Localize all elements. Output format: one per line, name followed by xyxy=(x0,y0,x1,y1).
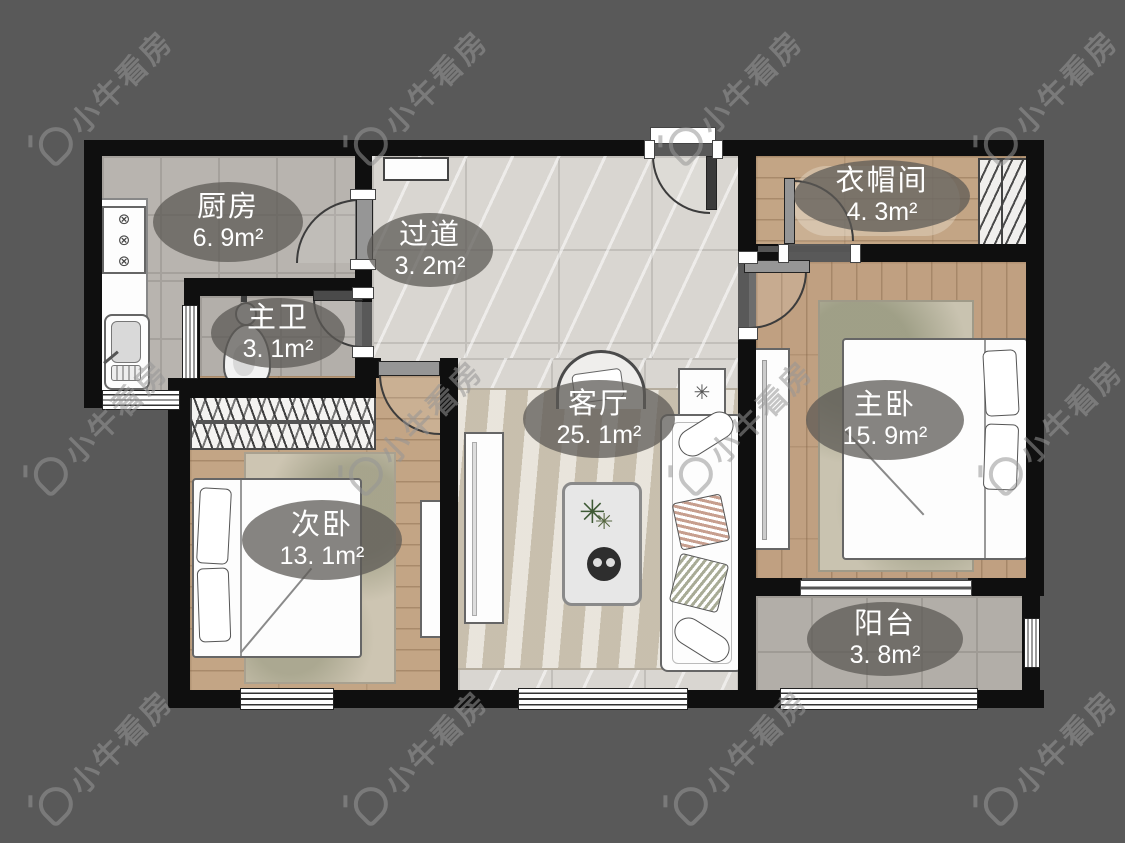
bathroom-window xyxy=(182,305,198,379)
kitchen-door-frame xyxy=(350,189,376,200)
room-label-living-room: 客厅 25. 1m² xyxy=(523,380,675,458)
cloakroom-door-frame xyxy=(850,244,861,263)
watermark-logo-icon xyxy=(667,780,715,828)
watermark-text: 小牛看房 xyxy=(57,678,181,802)
kitchen-window xyxy=(102,390,180,410)
wall xyxy=(168,378,376,398)
master-door-frame xyxy=(738,251,758,264)
sofa-cushion xyxy=(672,493,731,550)
entry-door xyxy=(706,156,717,210)
shoe-cabinet xyxy=(383,157,449,181)
cup-icon xyxy=(593,558,602,567)
balcony-sliding-door xyxy=(800,580,972,596)
room-name: 主卧 xyxy=(854,390,916,422)
wall xyxy=(852,244,1026,262)
entry-door-frame xyxy=(712,140,723,159)
second-bedroom-window xyxy=(240,688,334,710)
entry-door-frame xyxy=(644,140,655,159)
hanger-rail xyxy=(196,420,370,424)
pillow xyxy=(197,567,232,642)
room-name: 厨房 xyxy=(197,192,259,224)
sink-basin xyxy=(111,321,141,363)
room-area: 6. 9m² xyxy=(193,224,264,253)
room-name: 次卧 xyxy=(291,510,353,542)
master-wardrobe xyxy=(752,348,790,550)
balcony-side-window xyxy=(1024,618,1040,668)
room-label-hallway: 过道 3. 2m² xyxy=(367,213,493,287)
tray-icon xyxy=(587,547,621,581)
hanger-rack xyxy=(190,396,376,450)
pillow xyxy=(196,487,232,565)
cloakroom-door-frame xyxy=(778,244,789,263)
watermark-logo-icon xyxy=(977,780,1025,828)
burner-icon: ⊗ xyxy=(118,252,131,270)
cloakroom-door xyxy=(784,178,795,244)
room-name: 过道 xyxy=(399,220,461,252)
bathroom-door-frame xyxy=(352,346,374,358)
room-area: 13. 1m² xyxy=(280,542,365,571)
burner-icon: ⊗ xyxy=(118,231,131,249)
stove-icon: ⊗ ⊗ ⊗ xyxy=(102,206,146,274)
watermark-logo-icon xyxy=(32,780,80,828)
cup-icon xyxy=(606,558,615,567)
watermark-logo-icon xyxy=(347,780,395,828)
wall xyxy=(738,156,756,263)
second-bedroom-door xyxy=(378,361,440,376)
watermark: 小牛看房 xyxy=(28,678,181,831)
cloakroom-wardrobe xyxy=(978,158,1028,246)
bathroom-door-frame xyxy=(352,287,374,299)
sink-icon xyxy=(104,314,150,390)
wall xyxy=(738,330,756,690)
room-label-kitchen: 厨房 6. 9m² xyxy=(153,182,303,262)
room-area: 3. 1m² xyxy=(243,335,314,364)
room-name: 阳台 xyxy=(854,609,916,641)
wardrobe-door-line xyxy=(762,360,767,540)
pillow xyxy=(982,349,1019,417)
master-door-frame xyxy=(738,327,758,340)
room-label-second-bedroom: 次卧 13. 1m² xyxy=(242,500,402,580)
watermark-text: 小牛看房 xyxy=(1002,18,1125,142)
room-area: 3. 8m² xyxy=(850,641,921,670)
tv-console xyxy=(464,432,504,624)
balcony-window xyxy=(780,688,978,710)
closet-door-threshold xyxy=(758,246,852,252)
living-room-window xyxy=(518,688,688,710)
floor-plan: ⊗ ⊗ ⊗ xyxy=(0,0,1125,843)
burner-icon: ⊗ xyxy=(118,210,131,228)
room-name: 衣帽间 xyxy=(835,166,928,198)
pillow xyxy=(983,423,1019,490)
wall xyxy=(84,390,104,408)
room-area: 25. 1m² xyxy=(557,421,642,450)
wall xyxy=(714,140,1044,156)
room-area: 15. 9m² xyxy=(843,422,928,451)
wall xyxy=(440,358,458,690)
watermark-logo-icon xyxy=(27,450,75,498)
wall xyxy=(968,578,1026,596)
coffee-table: ✳ ✳ xyxy=(562,482,642,606)
wall xyxy=(168,398,190,690)
room-label-master-bedroom: 主卧 15. 9m² xyxy=(806,380,964,460)
wardrobe-rail xyxy=(1001,160,1003,244)
wall xyxy=(84,140,652,156)
entry-recess xyxy=(650,127,716,144)
watermark-text: 小牛看房 xyxy=(687,18,811,142)
flower-box: ✳ xyxy=(678,368,726,416)
watermark-text: 小牛看房 xyxy=(57,18,181,142)
watermark-text: 小牛看房 xyxy=(372,18,496,142)
bed-head-line xyxy=(240,480,242,656)
watermark-logo-icon xyxy=(32,120,80,168)
plant-icon: ✳ xyxy=(595,509,613,535)
wall xyxy=(84,156,102,408)
wall xyxy=(1026,156,1044,596)
room-area: 4. 3m² xyxy=(847,198,918,227)
room-area: 3. 2m² xyxy=(395,252,466,281)
room-name: 主卫 xyxy=(247,303,309,335)
room-label-master-bath: 主卫 3. 1m² xyxy=(211,298,345,368)
flower-icon: ✳ xyxy=(694,380,711,405)
room-label-cloakroom: 衣帽间 4. 3m² xyxy=(794,160,970,232)
wall xyxy=(756,578,802,596)
room-label-balcony: 阳台 3. 8m² xyxy=(807,602,963,676)
room-name: 客厅 xyxy=(568,389,630,421)
console-line xyxy=(472,442,477,616)
sink-drainer xyxy=(111,365,141,381)
